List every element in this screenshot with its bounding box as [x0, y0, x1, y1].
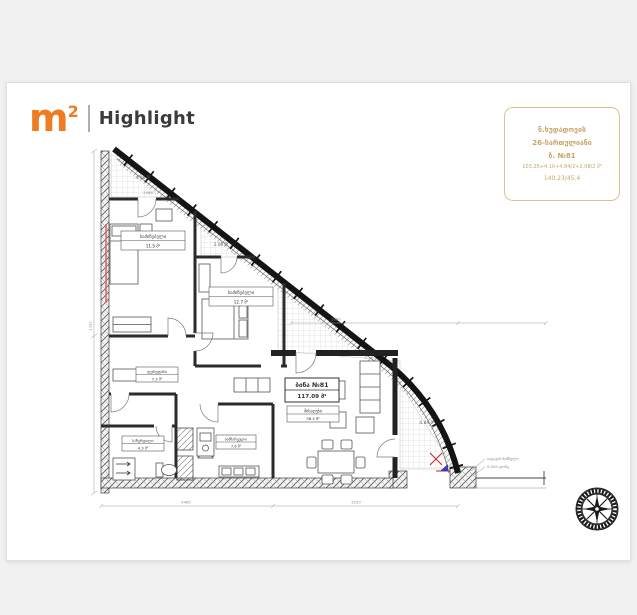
brochure-card: m2 Highlight ნ.ხუდადოვის 26-სართულიანი ბ…: [6, 82, 631, 561]
label-kitchen: სამზარეულო 7.6 მ²: [216, 435, 256, 449]
armchair: [356, 417, 374, 433]
svg-text:ს/წერტილი: ს/წერტილი: [132, 438, 153, 443]
sideboard: [234, 378, 270, 392]
svg-text:117.09 მ²: 117.09 მ²: [297, 393, 327, 400]
svg-text:2986: 2986: [143, 190, 153, 195]
label-bedroom2: საძინებელი 12.7 მ²: [209, 287, 273, 306]
label-bedroom1: საძინებელი 11.5 მ²: [121, 231, 185, 250]
compass-rose: [569, 481, 625, 537]
toilet-bowl: [162, 465, 177, 476]
label-corridor: დერეფანი 7.3 მ²: [136, 367, 178, 382]
dining-table: [318, 451, 354, 473]
label-balcony1: 4.08 მ²: [135, 174, 150, 181]
svg-text:სამზარეულო: სამზარეულო: [225, 438, 248, 442]
svg-text:საძინებელი: საძინებელი: [140, 233, 167, 240]
svg-text:მისაღები: მისაღები: [304, 408, 322, 413]
label-living: მისაღები 38.5 მ²: [287, 406, 339, 422]
m2-logo-exponent: 2: [68, 102, 78, 121]
svg-text:7.6 მ²: 7.6 მ²: [231, 445, 242, 449]
annotation-line1: იატაკის ნიშნული: [487, 456, 518, 461]
svg-text:ბინა №81: ბინა №81: [295, 381, 328, 389]
annotation-line2: 0.000 დონე: [487, 464, 509, 469]
svg-text:4.3 მ²: 4.3 მ²: [138, 445, 149, 450]
svg-text:38.5 მ²: 38.5 მ²: [306, 416, 320, 421]
label-balcony3: 4.84 მ²: [419, 419, 434, 426]
wardrobe2: [199, 264, 210, 292]
svg-text:7.3 მ²: 7.3 მ²: [152, 376, 163, 381]
label-balcony2: 2.08 მ²: [214, 242, 229, 247]
screenshot-root: { "page": { "background": "#f0f1f0", "ca…: [0, 0, 637, 615]
svg-text:12.7 მ²: 12.7 მ²: [234, 300, 249, 305]
svg-text:11.5 მ²: 11.5 მ²: [146, 244, 161, 249]
svg-text:1757: 1757: [88, 321, 93, 331]
label-bathroom: ს/წერტილი 4.3 მ²: [122, 436, 164, 451]
svg-text:2090: 2090: [331, 317, 341, 322]
svg-text:დერეფანი: დერეფანი: [147, 369, 166, 374]
svg-text:საძინებელი: საძინებელი: [228, 289, 255, 296]
label-apartment: ბინა №81 117.09 მ²: [285, 378, 339, 402]
floor-plan: საძინებელი 11.5 მ² საძინებელი 12.7 მ² დე…: [56, 121, 556, 521]
svg-text:4465: 4465: [181, 500, 191, 505]
kitchen-counter: [197, 428, 214, 456]
svg-text:3220: 3220: [351, 500, 361, 505]
desk1: [156, 209, 172, 221]
vanity: [113, 458, 135, 480]
